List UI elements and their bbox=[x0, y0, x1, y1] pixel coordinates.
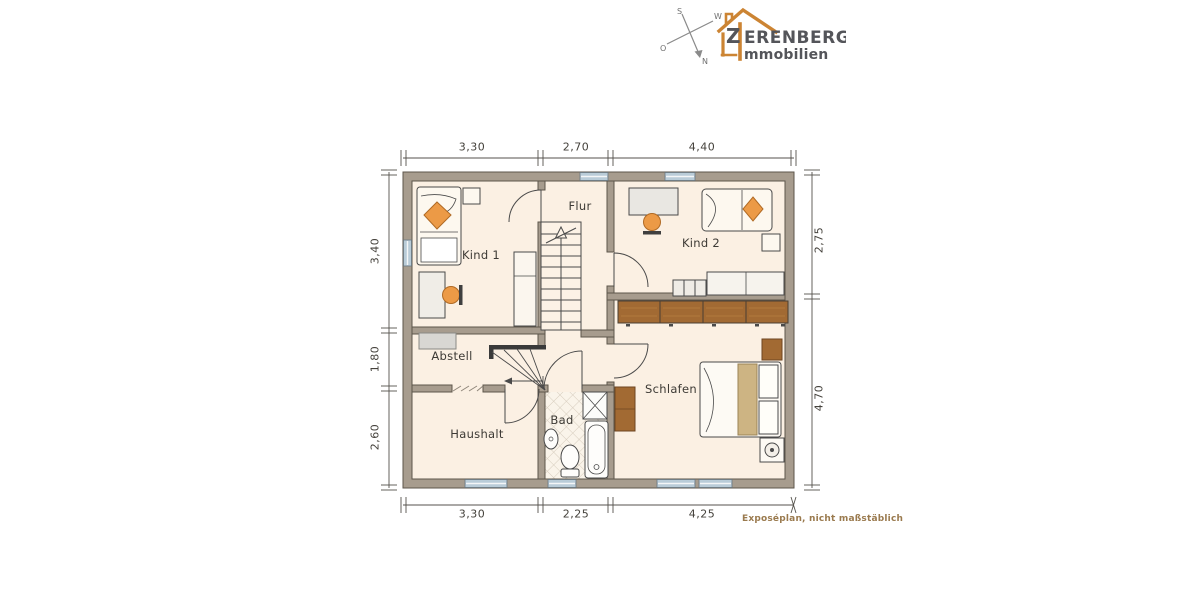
toilet-icon bbox=[561, 445, 579, 469]
room-label-kind1: Kind 1 bbox=[462, 248, 500, 262]
pillow-icon bbox=[759, 365, 778, 398]
dim-bottom-1: 3,30 bbox=[459, 508, 486, 521]
dim-top-1: 3,30 bbox=[459, 141, 486, 154]
dim-top-2: 2,70 bbox=[563, 141, 590, 154]
staircase bbox=[541, 222, 581, 330]
desk-icon bbox=[629, 188, 678, 215]
plan-footnote: Exposéplan, nicht maßstäblich bbox=[742, 514, 903, 524]
chair-icon bbox=[644, 214, 661, 231]
dim-left-2: 1,80 bbox=[369, 346, 382, 373]
dim-left-1: 3,40 bbox=[369, 238, 382, 265]
dim-bottom-3: 4,25 bbox=[689, 508, 716, 521]
floorplan-page: { "brand": { "initial": "Z", "name_rest"… bbox=[0, 0, 1200, 600]
table-icon bbox=[673, 280, 706, 296]
nightstand-icon bbox=[762, 339, 782, 360]
dim-left-3: 2,60 bbox=[369, 424, 382, 451]
bench-icon bbox=[707, 272, 784, 295]
dim-right-1: 2,75 bbox=[813, 227, 826, 254]
duvet-icon bbox=[738, 364, 757, 435]
side-table-icon bbox=[463, 188, 480, 204]
desk-icon bbox=[419, 272, 445, 318]
floor-plan bbox=[0, 0, 1200, 600]
room-label-flur: Flur bbox=[568, 199, 591, 213]
dim-top-3: 4,40 bbox=[689, 141, 716, 154]
room-label-bad: Bad bbox=[550, 413, 573, 427]
room-label-haushalt: Haushalt bbox=[450, 427, 503, 441]
dim-bottom-2: 2,25 bbox=[563, 508, 590, 521]
side-table-icon bbox=[762, 234, 780, 251]
pillow-icon bbox=[759, 401, 778, 434]
room-label-abstell: Abstell bbox=[431, 349, 472, 363]
schlafen-wardrobe bbox=[618, 301, 788, 327]
chair-icon bbox=[443, 287, 460, 304]
sink-icon bbox=[544, 429, 558, 449]
shelf-icon bbox=[419, 333, 456, 349]
dim-right-2: 4,70 bbox=[813, 385, 826, 412]
room-label-schlafen: Schlafen bbox=[645, 382, 697, 396]
wardrobe-icon bbox=[514, 252, 536, 326]
room-label-kind2: Kind 2 bbox=[682, 236, 720, 250]
